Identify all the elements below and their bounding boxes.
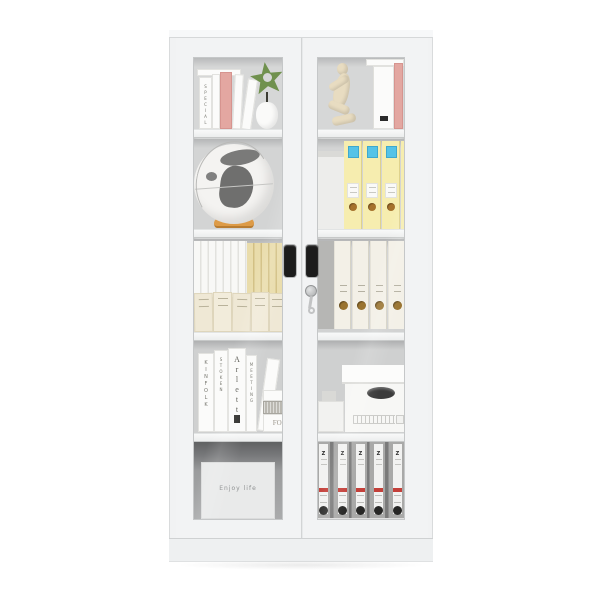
magazine-file <box>334 241 351 329</box>
binder-red-tag <box>374 488 383 492</box>
binder-red-tag <box>356 488 365 492</box>
cabinet-base <box>169 538 433 562</box>
folder-grommet <box>349 203 357 211</box>
magazine-file <box>352 241 369 329</box>
book-title: STOKEN <box>219 357 224 431</box>
book-title: KINFOLK <box>203 360 209 431</box>
compartment-bottom-left: Enjoy life <box>194 441 282 519</box>
archive-binder: Z <box>369 442 386 518</box>
archive-binder: Z <box>318 442 331 518</box>
compartment-globe <box>194 139 282 229</box>
right-door-glass: Z Z Z Z <box>317 57 405 520</box>
stacked-book-gray <box>263 401 282 414</box>
finger-hole <box>339 301 348 310</box>
binder-label: Z <box>356 444 365 514</box>
shelf-divider <box>194 129 282 138</box>
notebook <box>232 293 252 332</box>
folder-label <box>385 183 397 198</box>
file-label <box>376 285 383 292</box>
magazine-file <box>388 241 404 329</box>
book-spine: SPECIAL ISSUE <box>199 77 212 129</box>
panel-text: Enjoy life <box>202 485 274 492</box>
star-plant-hole <box>263 73 272 82</box>
left-door-glass: SPECIAL ISSUE <box>193 57 283 520</box>
archive-binder: Z <box>351 442 368 518</box>
notebook <box>194 293 213 332</box>
yellow-folder <box>344 141 362 229</box>
shelf-divider <box>194 332 282 341</box>
pink-book-spine <box>394 63 403 129</box>
stacked-book-fol: FOL <box>263 414 282 432</box>
shelf-divider <box>318 332 404 341</box>
binder-finger-hole <box>374 506 383 515</box>
small-white-stack <box>318 401 344 432</box>
binder-label-lines <box>357 495 364 503</box>
compartment-storage-box <box>318 341 404 433</box>
binder-label-lines <box>339 495 346 503</box>
finger-hole <box>375 301 384 310</box>
key-ring <box>308 307 315 314</box>
compartment-magazine-files <box>318 239 404 332</box>
shadowed-file <box>318 241 334 329</box>
enjoy-life-panel: Enjoy life <box>201 462 275 519</box>
binder-label-lines <box>394 495 401 503</box>
shelf-divider <box>194 433 282 442</box>
binder-label-lines <box>375 495 382 503</box>
binder-finger-hole <box>338 506 347 515</box>
binder-finger-hole <box>356 506 365 515</box>
book-title: FOL <box>273 419 282 431</box>
compartment-bottom-binders: Z Z Z Z <box>318 441 404 519</box>
folder-grommet <box>387 203 395 211</box>
archive-binder: Z <box>333 442 350 518</box>
compartment-top-left: SPECIAL ISSUE <box>194 58 282 129</box>
cabinet-top-edge <box>169 30 433 38</box>
compartment-top-right <box>318 58 404 129</box>
shelf-divider <box>318 433 404 442</box>
binder-letter: Z <box>393 451 402 457</box>
yellow-folder-partial <box>401 141 404 229</box>
binder-finger-hole <box>319 506 328 515</box>
white-binder-row <box>194 241 247 297</box>
binder-letter: Z <box>338 451 347 457</box>
folder-blue-tab <box>367 146 378 158</box>
binder-label: Z <box>338 444 347 514</box>
notebook <box>251 292 269 332</box>
finger-hole <box>393 301 402 310</box>
globe-meridian-ring <box>194 139 278 229</box>
file-label <box>394 285 401 292</box>
figurine-leg <box>331 113 356 127</box>
left-door-handle <box>284 245 296 277</box>
shelf-divider <box>318 229 404 238</box>
folder-grommet <box>368 203 376 211</box>
binder-red-tag <box>338 488 347 492</box>
white-file-box <box>318 151 344 229</box>
box-corner-label <box>396 415 404 424</box>
folder-blue-tab <box>386 146 397 158</box>
folder-label <box>366 183 378 198</box>
book-stoken: STOKEN <box>214 350 228 432</box>
book-meeting: MEETING <box>246 355 257 432</box>
leaning-book <box>241 78 258 129</box>
binder-label: Z <box>393 444 402 514</box>
file-label <box>340 285 347 292</box>
file-label <box>358 285 365 292</box>
archive-binder: Z <box>388 442 404 518</box>
binder-label: Z <box>374 444 383 514</box>
notebook <box>269 293 282 332</box>
tan-binder-row <box>247 243 282 297</box>
figurine <box>322 62 368 129</box>
binder-finger-hole <box>393 506 402 515</box>
folder-blue-tab <box>348 146 359 158</box>
file-box-label <box>380 116 388 121</box>
folder-label <box>347 183 359 198</box>
binder-letter: Z <box>374 451 383 457</box>
compartment-books-left: KINFOLK STOKEN Arletta MEETING FOL <box>194 341 282 433</box>
compartment-binders-left <box>194 239 282 332</box>
yellow-folder <box>363 141 381 229</box>
binder-letter: Z <box>356 451 365 457</box>
shelf-divider <box>194 229 282 238</box>
binder-red-tag <box>393 488 402 492</box>
binder-red-tag <box>319 488 328 492</box>
book-title: MEETING <box>249 362 254 431</box>
binder-label: Z <box>319 444 328 514</box>
binder-letter: Z <box>319 451 328 457</box>
compartment-yellow-folders <box>318 139 404 229</box>
floor-shadow <box>175 560 427 570</box>
box-handle-hole <box>367 387 395 399</box>
right-door-handle <box>306 245 318 277</box>
box-index-strip <box>353 415 395 424</box>
finger-hole <box>357 301 366 310</box>
product-photo-white-storage-cabinet: SPECIAL ISSUE <box>0 0 600 600</box>
small-gray-box <box>322 391 336 401</box>
book-label <box>234 415 240 423</box>
book-kinfolk: KINFOLK <box>198 353 214 432</box>
binder-label-lines <box>320 495 327 503</box>
yellow-folder <box>382 141 400 229</box>
magazine-file <box>370 241 387 329</box>
white-vase <box>256 102 278 129</box>
shelf-divider <box>318 129 404 138</box>
notebook <box>213 292 232 332</box>
stacked-book <box>263 390 282 401</box>
pink-book-spine <box>220 72 232 129</box>
storage-box-lid <box>342 365 404 384</box>
book-spine <box>212 74 220 129</box>
book-spine-text: SPECIAL ISSUE <box>203 84 208 128</box>
